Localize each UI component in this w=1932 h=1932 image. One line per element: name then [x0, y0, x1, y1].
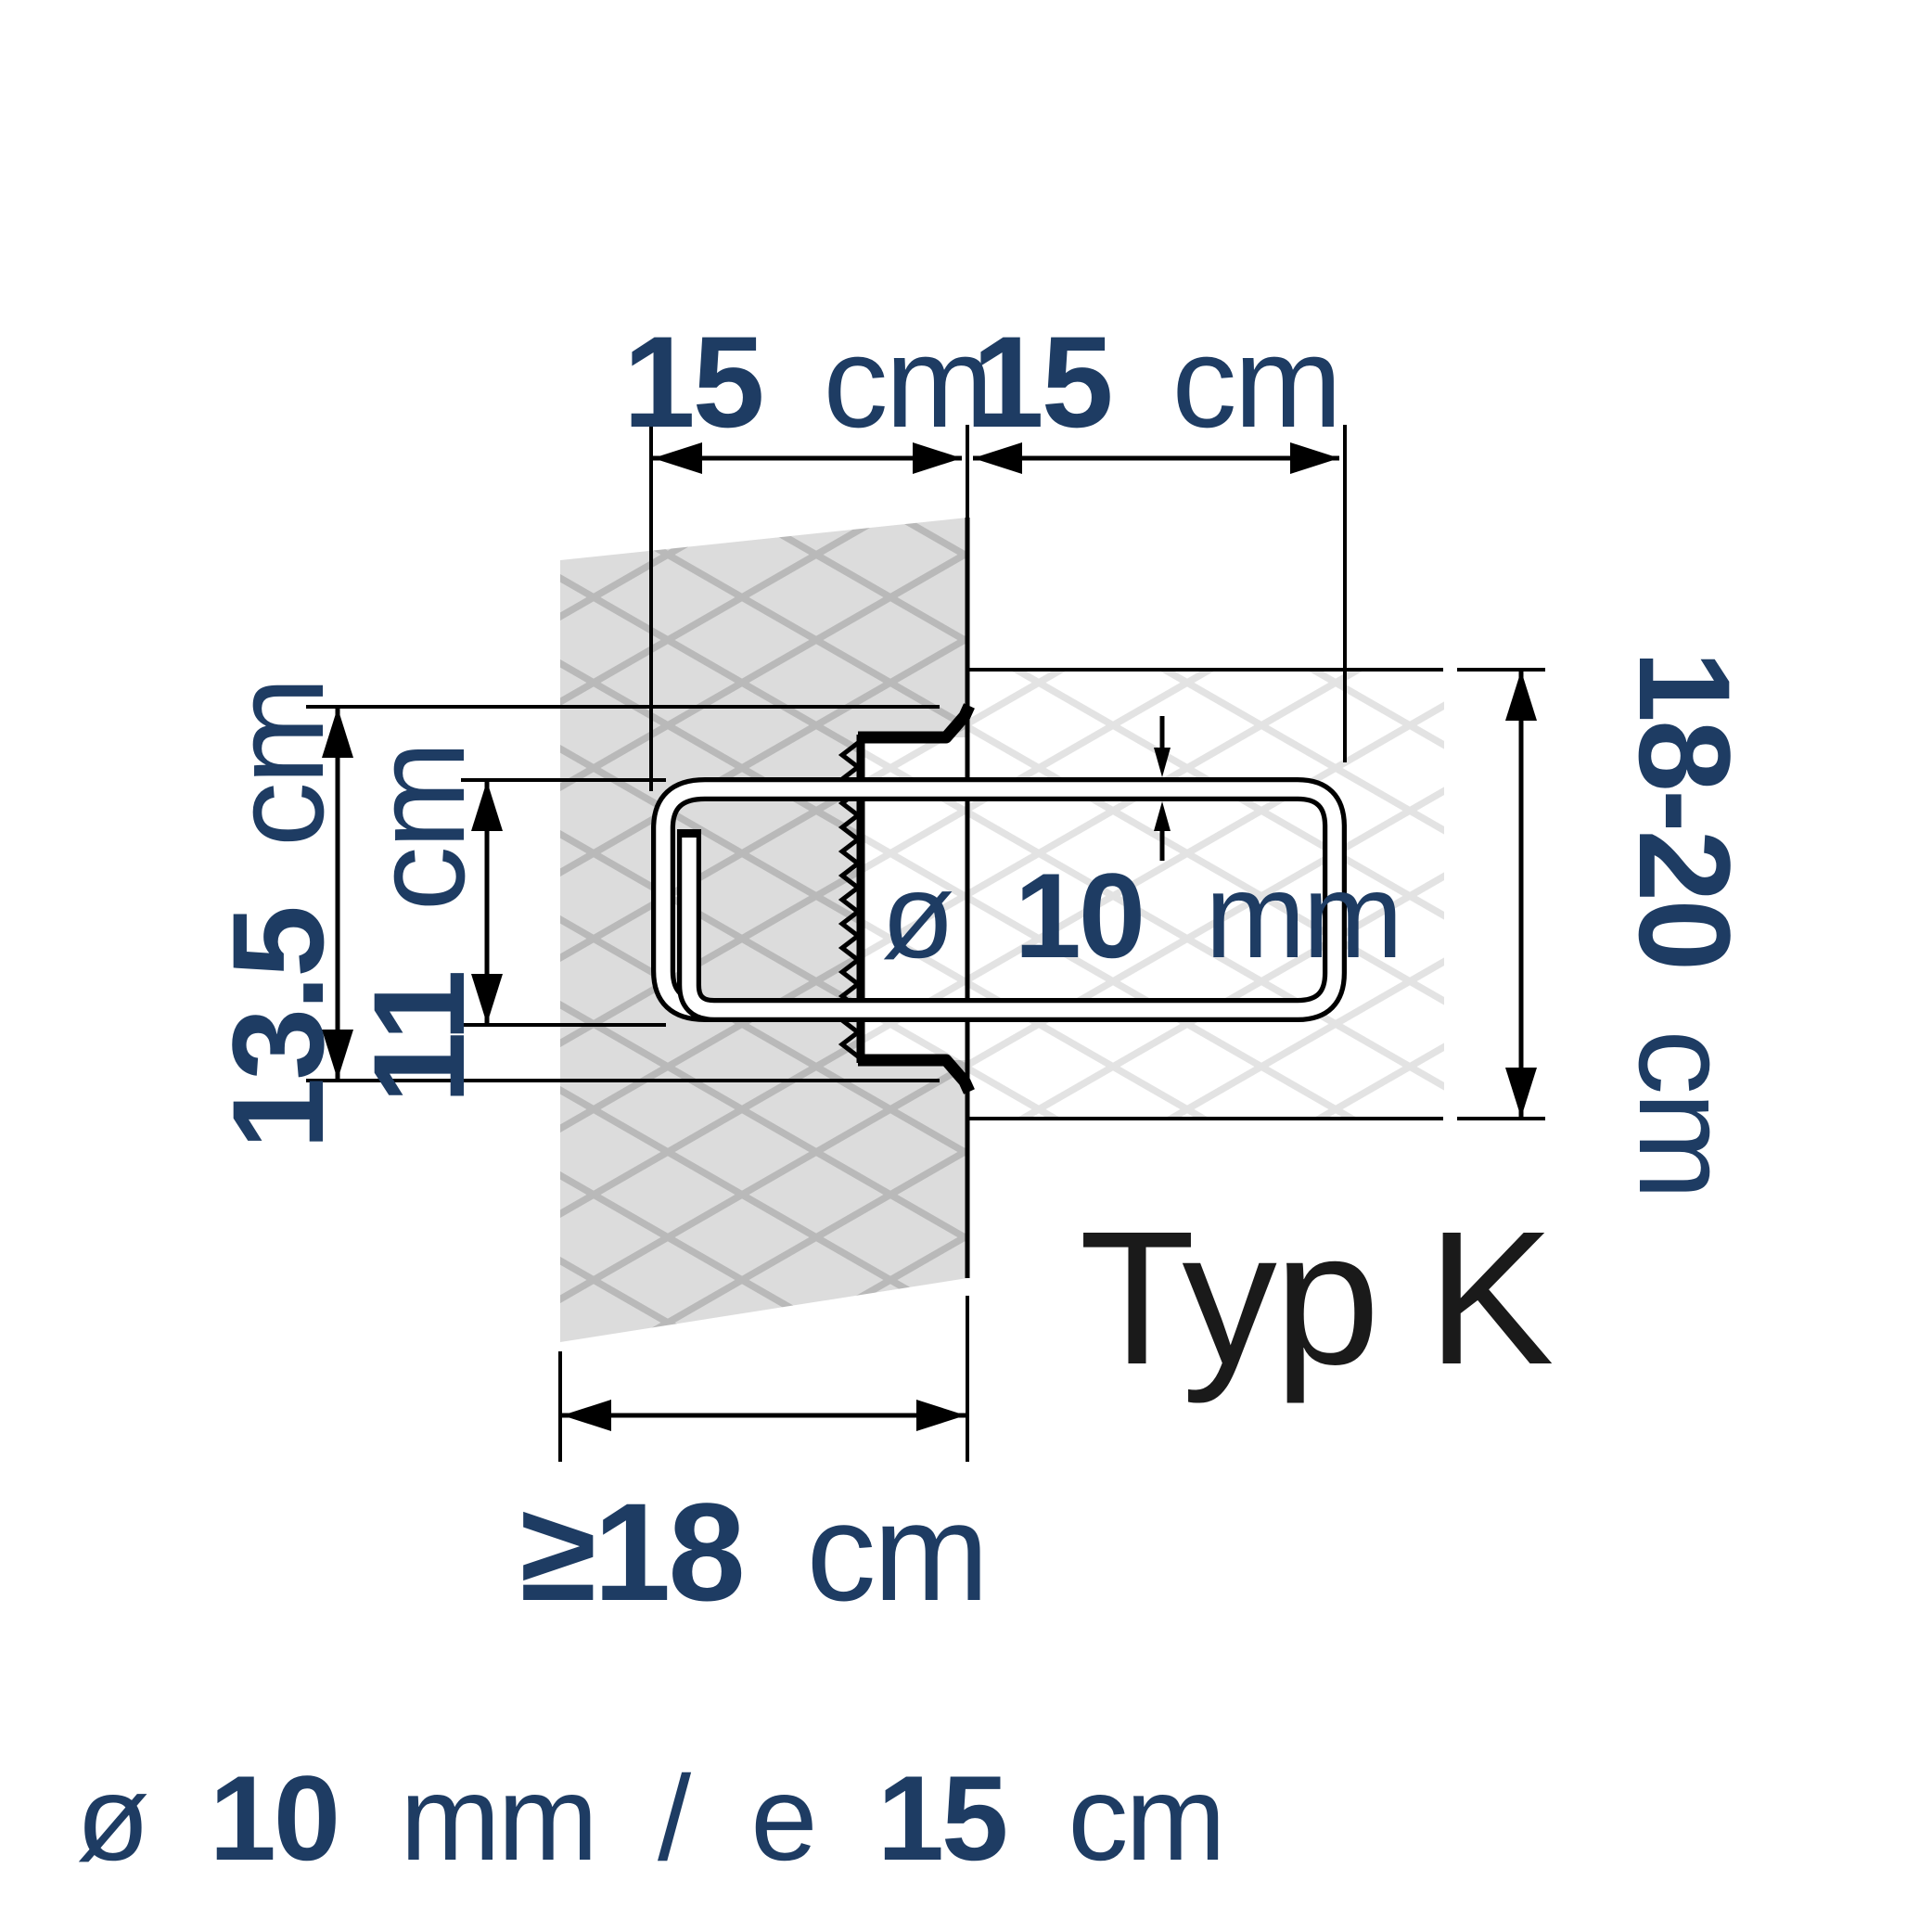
diameter-symbol: ø [76, 1750, 147, 1886]
dim-value: 18-20 [1612, 650, 1758, 968]
footer-separator: / [658, 1750, 692, 1886]
arrowhead [916, 1400, 966, 1431]
dim-unit: cm [205, 679, 351, 847]
dim-unit: cm [346, 744, 492, 912]
dim-label-rail-height: 13.5 cm [205, 679, 351, 1149]
dim-unit: cm [806, 1474, 986, 1630]
dim-label-wall-thickness: ≥18 cm [520, 1474, 987, 1630]
dim-unit: cm [1612, 1030, 1758, 1197]
type-designation-label: Typ K [1079, 1192, 1552, 1404]
dim-value: ≥18 [520, 1474, 743, 1630]
dim-unit: cm [1172, 309, 1340, 454]
dim-value: 11 [346, 972, 492, 1104]
dim-unit: cm [824, 309, 992, 454]
footer-spec-label: ø 10 mm / e 15 cm [76, 1750, 1223, 1886]
dim-unit: mm [1205, 848, 1401, 983]
dim-label-hook-spacing: 11 cm [346, 744, 492, 1105]
drawing-page: 15 cm 15 cm 13.5 cm 11 cm ø 10 mm 18-20 … [0, 0, 1932, 1932]
dim-value: 13.5 [205, 908, 351, 1149]
arrowhead [1505, 1068, 1537, 1118]
footer-spacing-unit: cm [1068, 1750, 1222, 1886]
dim-label-embed-left: 15 cm [623, 309, 991, 454]
footer-spacing: 15 [877, 1750, 1006, 1886]
dim-value: 15 [972, 309, 1111, 454]
typ-k-anchor-diagram: 15 cm 15 cm 13.5 cm 11 cm ø 10 mm 18-20 … [0, 0, 1932, 1932]
dim-value: 15 [623, 309, 762, 454]
arrowhead [562, 1400, 611, 1431]
arrowhead [1505, 671, 1537, 721]
footer-spacing-symbol: e [750, 1750, 814, 1886]
dim-label-bar-diameter: ø 10 mm [881, 848, 1401, 983]
footer-diameter-unit: mm [400, 1750, 595, 1886]
dim-label-course-height: 18-20 cm [1612, 650, 1758, 1197]
footer-diameter: 10 [210, 1750, 339, 1886]
diameter-symbol: ø [881, 848, 953, 983]
dim-label-embed-right: 15 cm [972, 309, 1339, 454]
dim-value: 10 [1015, 848, 1144, 983]
